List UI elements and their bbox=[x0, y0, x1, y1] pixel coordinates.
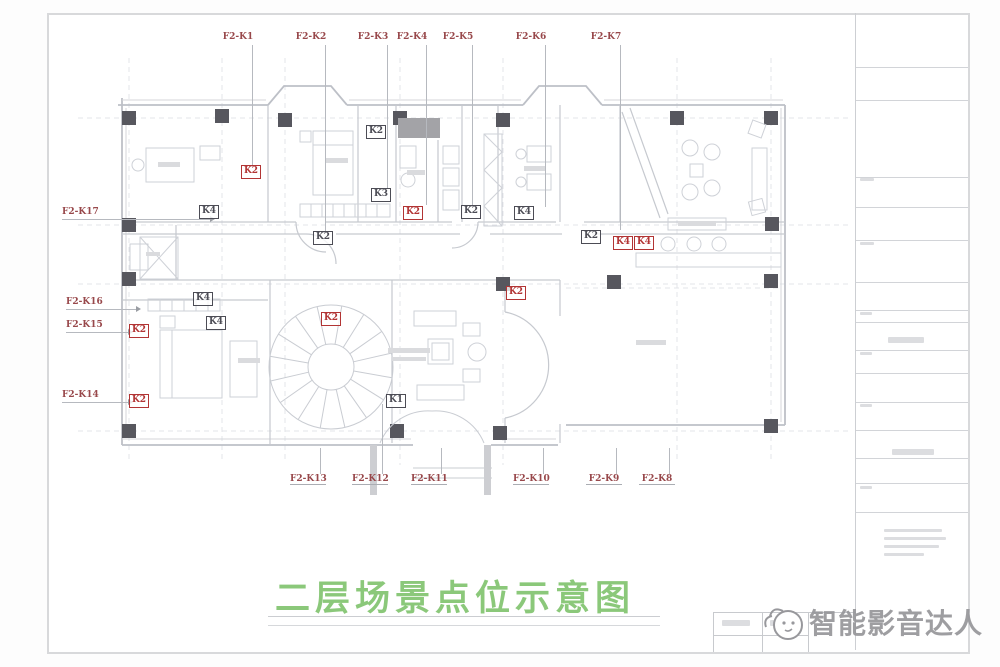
titleblock-divider bbox=[856, 402, 968, 403]
leader-line bbox=[382, 404, 383, 474]
faint-text-bar bbox=[722, 620, 750, 626]
point-label: F2-K9 bbox=[586, 474, 622, 485]
faint-text-bar bbox=[884, 545, 939, 548]
point-label: F2-K6 bbox=[513, 32, 549, 42]
leader-line bbox=[426, 45, 427, 205]
leader-line bbox=[545, 45, 546, 207]
leader-line bbox=[66, 332, 130, 333]
faint-text-bar bbox=[892, 449, 934, 455]
leader-line bbox=[543, 448, 544, 474]
title-block-border bbox=[855, 13, 856, 650]
faint-text-bar bbox=[884, 553, 924, 556]
point-label: F2-K3 bbox=[355, 32, 391, 42]
leader-line bbox=[66, 309, 138, 310]
titleblock-divider bbox=[856, 100, 968, 101]
leader-line bbox=[252, 45, 253, 168]
k-marker: K4 bbox=[613, 236, 633, 250]
point-label: F2-K17 bbox=[62, 207, 102, 217]
point-label: F2-K14 bbox=[62, 390, 102, 400]
titleblock-divider bbox=[856, 322, 968, 323]
k-marker: K2 bbox=[581, 230, 601, 244]
watermark-text: 智能影音达人 bbox=[809, 602, 983, 642]
leader-line bbox=[62, 219, 212, 220]
point-label: F2-K7 bbox=[588, 32, 624, 42]
faint-text-bar bbox=[888, 337, 924, 343]
titleblock-divider bbox=[856, 207, 968, 208]
titleblock-divider bbox=[856, 483, 968, 484]
watermark-logo-icon bbox=[762, 600, 806, 644]
titleblock-divider bbox=[856, 373, 968, 374]
k-marker: K3 bbox=[371, 188, 391, 202]
k-marker: K4 bbox=[514, 206, 534, 220]
titleblock-divider bbox=[856, 67, 968, 68]
point-label: F2-K15 bbox=[66, 320, 106, 330]
point-label: F2-K12 bbox=[352, 474, 388, 485]
faint-text-bar bbox=[860, 312, 872, 315]
point-label: F2-K2 bbox=[293, 32, 329, 42]
titleblock-divider bbox=[856, 512, 968, 513]
k-marker: K2 bbox=[321, 312, 341, 326]
k-marker: K2 bbox=[241, 165, 261, 179]
k-marker: K4 bbox=[199, 205, 219, 219]
point-label: F2-K10 bbox=[513, 474, 549, 485]
titleblock-divider bbox=[856, 240, 968, 241]
leader-line bbox=[620, 45, 621, 230]
titleblock-divider bbox=[856, 282, 968, 283]
k-marker: K2 bbox=[403, 206, 423, 220]
leader-line bbox=[320, 448, 321, 474]
k-marker: K2 bbox=[129, 324, 149, 338]
sheet-frame bbox=[47, 13, 970, 654]
leader-line bbox=[616, 448, 617, 474]
faint-text-bar bbox=[860, 352, 872, 355]
faint-text-bar bbox=[860, 242, 874, 245]
titleblock-divider bbox=[856, 458, 968, 459]
drawing-title-underline bbox=[268, 616, 660, 626]
titleblock-divider bbox=[856, 350, 968, 351]
stamp-table-line bbox=[713, 612, 714, 652]
k-marker: K2 bbox=[313, 231, 333, 245]
leader-line bbox=[387, 45, 388, 188]
k-marker: K4 bbox=[634, 236, 654, 250]
leader-line bbox=[472, 45, 473, 205]
faint-text-bar bbox=[860, 486, 872, 489]
point-label: F2-K11 bbox=[411, 474, 447, 485]
faint-text-bar bbox=[884, 537, 946, 540]
drawing-title: 二层场景点位示意图 bbox=[250, 570, 660, 621]
point-label: F2-K4 bbox=[394, 32, 430, 42]
k-marker: K1 bbox=[386, 394, 406, 408]
leader-line bbox=[325, 45, 326, 232]
point-label: F2-K1 bbox=[220, 32, 256, 42]
titleblock-divider bbox=[856, 310, 968, 311]
watermark: 智能影音达人 bbox=[762, 600, 983, 644]
k-marker: K4 bbox=[206, 316, 226, 330]
k-marker: K2 bbox=[506, 286, 526, 300]
point-label: F2-K5 bbox=[440, 32, 476, 42]
leader-line bbox=[441, 448, 442, 474]
faint-text-bar bbox=[860, 404, 872, 407]
leader-line bbox=[62, 402, 130, 403]
leader-line bbox=[669, 448, 670, 474]
k-marker: K4 bbox=[193, 292, 213, 306]
point-label: F2-K8 bbox=[639, 474, 675, 485]
floor-plan-sheet: F2-K1F2-K2F2-K3F2-K4F2-K5F2-K6F2-K7F2-K1… bbox=[0, 0, 1000, 667]
point-label: F2-K16 bbox=[66, 297, 106, 307]
titleblock-divider bbox=[856, 430, 968, 431]
faint-text-bar bbox=[884, 529, 942, 532]
leader-arrow-icon bbox=[136, 306, 141, 312]
k-marker: K2 bbox=[461, 205, 481, 219]
point-label: F2-K13 bbox=[290, 474, 326, 485]
k-marker: K2 bbox=[129, 394, 149, 408]
faint-text-bar bbox=[860, 178, 874, 181]
k-marker: K2 bbox=[366, 125, 386, 139]
